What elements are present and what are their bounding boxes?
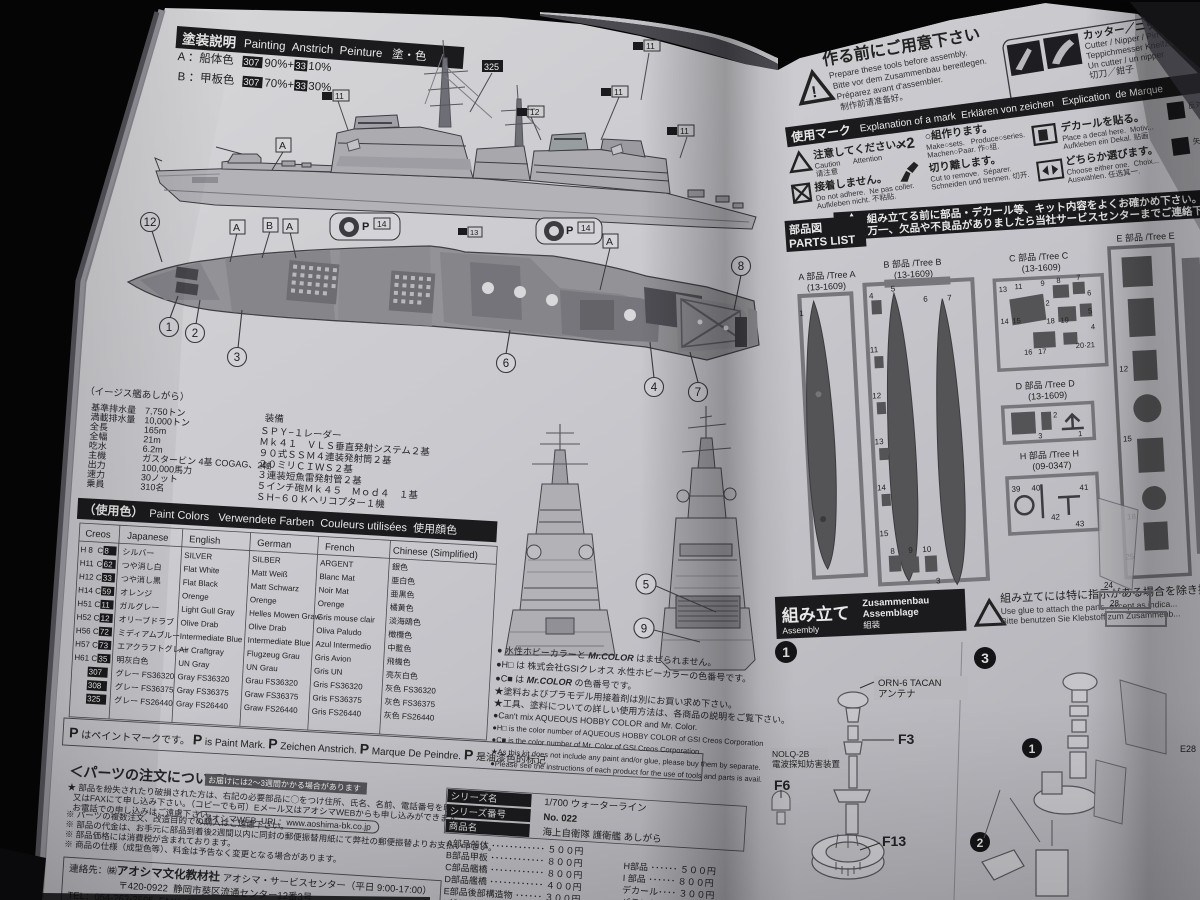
svg-text:(13-1609): (13-1609) (807, 281, 847, 293)
svg-text:40: 40 (1031, 483, 1041, 492)
svg-text:2: 2 (1045, 298, 1050, 307)
svg-text:15: 15 (1012, 316, 1021, 325)
svg-text:Orenge: Orenge (250, 595, 278, 606)
svg-text:6: 6 (503, 358, 509, 370)
svg-text:15: 15 (879, 529, 889, 538)
svg-text:French: French (325, 542, 355, 555)
svg-text:90%+: 90%+ (264, 57, 295, 71)
svg-text:German: German (257, 538, 292, 551)
svg-text:3: 3 (981, 650, 989, 666)
svg-text:12: 12 (872, 391, 882, 400)
svg-text:14: 14 (877, 483, 887, 492)
svg-text:11: 11 (1014, 282, 1022, 291)
svg-text:2: 2 (1053, 410, 1058, 419)
svg-text:A: A (279, 140, 286, 152)
svg-text:English: English (189, 534, 221, 547)
svg-text:P: P (362, 221, 369, 233)
svg-text:(13-1609): (13-1609) (1021, 262, 1061, 274)
svg-text:13: 13 (999, 285, 1008, 294)
svg-text:8: 8 (1056, 276, 1061, 285)
svg-text:307: 307 (243, 77, 260, 89)
svg-text:42: 42 (1051, 512, 1061, 521)
svg-text:組装: 組装 (863, 619, 881, 630)
svg-text:10%: 10% (308, 61, 332, 75)
svg-text:A: A (606, 236, 613, 248)
svg-text:アンテナ: アンテナ (878, 689, 916, 700)
svg-text:14: 14 (377, 219, 387, 229)
svg-text:Noir Mat: Noir Mat (318, 585, 349, 596)
svg-text:(13-1609): (13-1609) (1028, 390, 1068, 402)
svg-text:13: 13 (874, 437, 884, 446)
svg-text:12: 12 (530, 107, 540, 117)
svg-text:18: 18 (1046, 316, 1055, 325)
svg-text:325: 325 (484, 62, 499, 72)
svg-text:9: 9 (1040, 279, 1045, 288)
svg-text:亜白色: 亜白色 (391, 575, 416, 586)
svg-text:14: 14 (1000, 317, 1009, 326)
svg-text:33: 33 (295, 61, 306, 73)
svg-text:70%+: 70%+ (264, 77, 295, 91)
svg-text:橘黄色: 橘黄色 (389, 602, 414, 613)
svg-text:19: 19 (1060, 315, 1069, 324)
svg-text:橄欖色: 橄欖色 (388, 629, 413, 640)
svg-text:B: B (266, 220, 273, 232)
svg-text:中藍色: 中藍色 (387, 642, 412, 653)
svg-text:10: 10 (922, 545, 932, 554)
svg-text:UN Grau: UN Grau (246, 663, 278, 674)
svg-text:307: 307 (243, 57, 260, 69)
svg-text:13: 13 (470, 228, 478, 237)
svg-text:飛機色: 飛機色 (386, 656, 411, 667)
svg-text:A: A (233, 222, 240, 234)
svg-text:銀色: 銀色 (392, 561, 409, 572)
svg-text:3: 3 (234, 352, 240, 364)
svg-text:ARGENT: ARGENT (320, 558, 354, 569)
svg-text:11: 11 (335, 91, 344, 101)
svg-text:43: 43 (1075, 519, 1085, 528)
svg-text:Orenge: Orenge (318, 599, 346, 610)
svg-text:A: A (286, 221, 293, 233)
svg-text:淡海鴎色: 淡海鴎色 (389, 615, 422, 627)
svg-text:P: P (566, 225, 573, 237)
svg-text:Orenge: Orenge (182, 591, 210, 602)
svg-text:×2: ×2 (897, 135, 916, 154)
svg-text:装備: 装備 (264, 412, 284, 425)
svg-text:7: 7 (1076, 273, 1081, 282)
svg-text:39: 39 (1011, 484, 1021, 493)
svg-text:亮灰白色: 亮灰白色 (386, 669, 419, 681)
svg-text:1: 1 (1078, 429, 1083, 438)
svg-text:11: 11 (614, 87, 623, 97)
svg-text:2: 2 (192, 328, 198, 340)
svg-text:16: 16 (1024, 347, 1033, 356)
svg-text:亜黒色: 亜黒色 (390, 588, 415, 599)
svg-text:33: 33 (295, 81, 306, 93)
svg-text:3: 3 (1038, 431, 1043, 440)
svg-text:14: 14 (581, 223, 591, 233)
svg-text:Gris UN: Gris UN (314, 666, 343, 677)
svg-text:SILBER: SILBER (252, 555, 281, 566)
svg-text:ORN-6 TACAN: ORN-6 TACAN (878, 678, 942, 689)
svg-text:17: 17 (1038, 347, 1047, 356)
svg-text:11: 11 (870, 345, 879, 354)
svg-text:(09-0347): (09-0347) (1032, 460, 1072, 472)
svg-text:SILVER: SILVER (184, 551, 213, 562)
svg-text:UN Gray: UN Gray (178, 659, 210, 670)
